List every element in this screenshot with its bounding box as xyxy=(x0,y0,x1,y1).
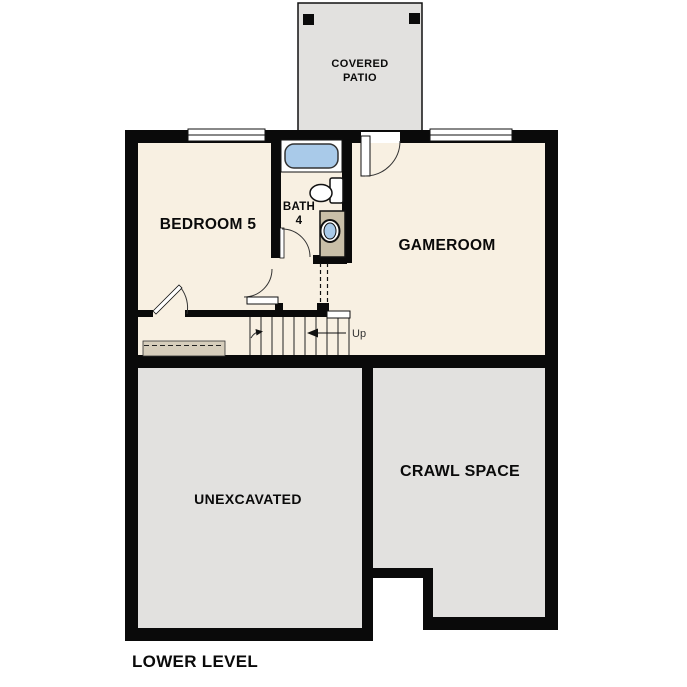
wall-notch-top xyxy=(362,568,433,578)
stair-railing xyxy=(327,311,350,318)
wall-left xyxy=(125,130,138,641)
bathtub-icon xyxy=(281,140,342,172)
unexcavated-label: UNEXCAVATED xyxy=(194,491,302,507)
patio-post-right xyxy=(409,13,420,24)
wall-right xyxy=(545,130,558,630)
floorplan-drawing: COVERED PATIO xyxy=(0,0,687,687)
bath-label-line2: 4 xyxy=(296,215,303,227)
covered-patio-label-line2: PATIO xyxy=(343,72,377,84)
wall-bath-left xyxy=(271,140,281,258)
wall-mid xyxy=(125,355,558,368)
covered-patio-label-line1: COVERED xyxy=(331,58,388,70)
crawl-space-label: CRAWL SPACE xyxy=(400,463,520,480)
covered-patio-room: COVERED PATIO xyxy=(298,3,422,133)
wall-bottom-left xyxy=(125,628,373,641)
bedroom-label: BEDROOM 5 xyxy=(160,216,257,233)
floorplan-page: COVERED PATIO xyxy=(0,0,687,687)
wall-crawl-bottom xyxy=(423,617,558,630)
gameroom-label: GAMEROOM xyxy=(398,237,495,254)
vanity-sink-icon xyxy=(320,211,345,257)
page-title: LOWER LEVEL xyxy=(132,652,258,671)
wall-stair-top xyxy=(185,310,327,317)
wall-divider xyxy=(362,367,373,641)
gameroom-window-icon xyxy=(430,129,512,141)
wall-bedroom-stub xyxy=(138,310,153,317)
stairs-up-label: Up xyxy=(352,328,366,340)
bedroom-window-icon xyxy=(188,129,265,141)
patio-post-left xyxy=(303,14,314,25)
bath-label-line1: BATH xyxy=(283,201,315,213)
lower-ledge-strip xyxy=(143,341,225,356)
crawl-space-area xyxy=(368,362,551,623)
